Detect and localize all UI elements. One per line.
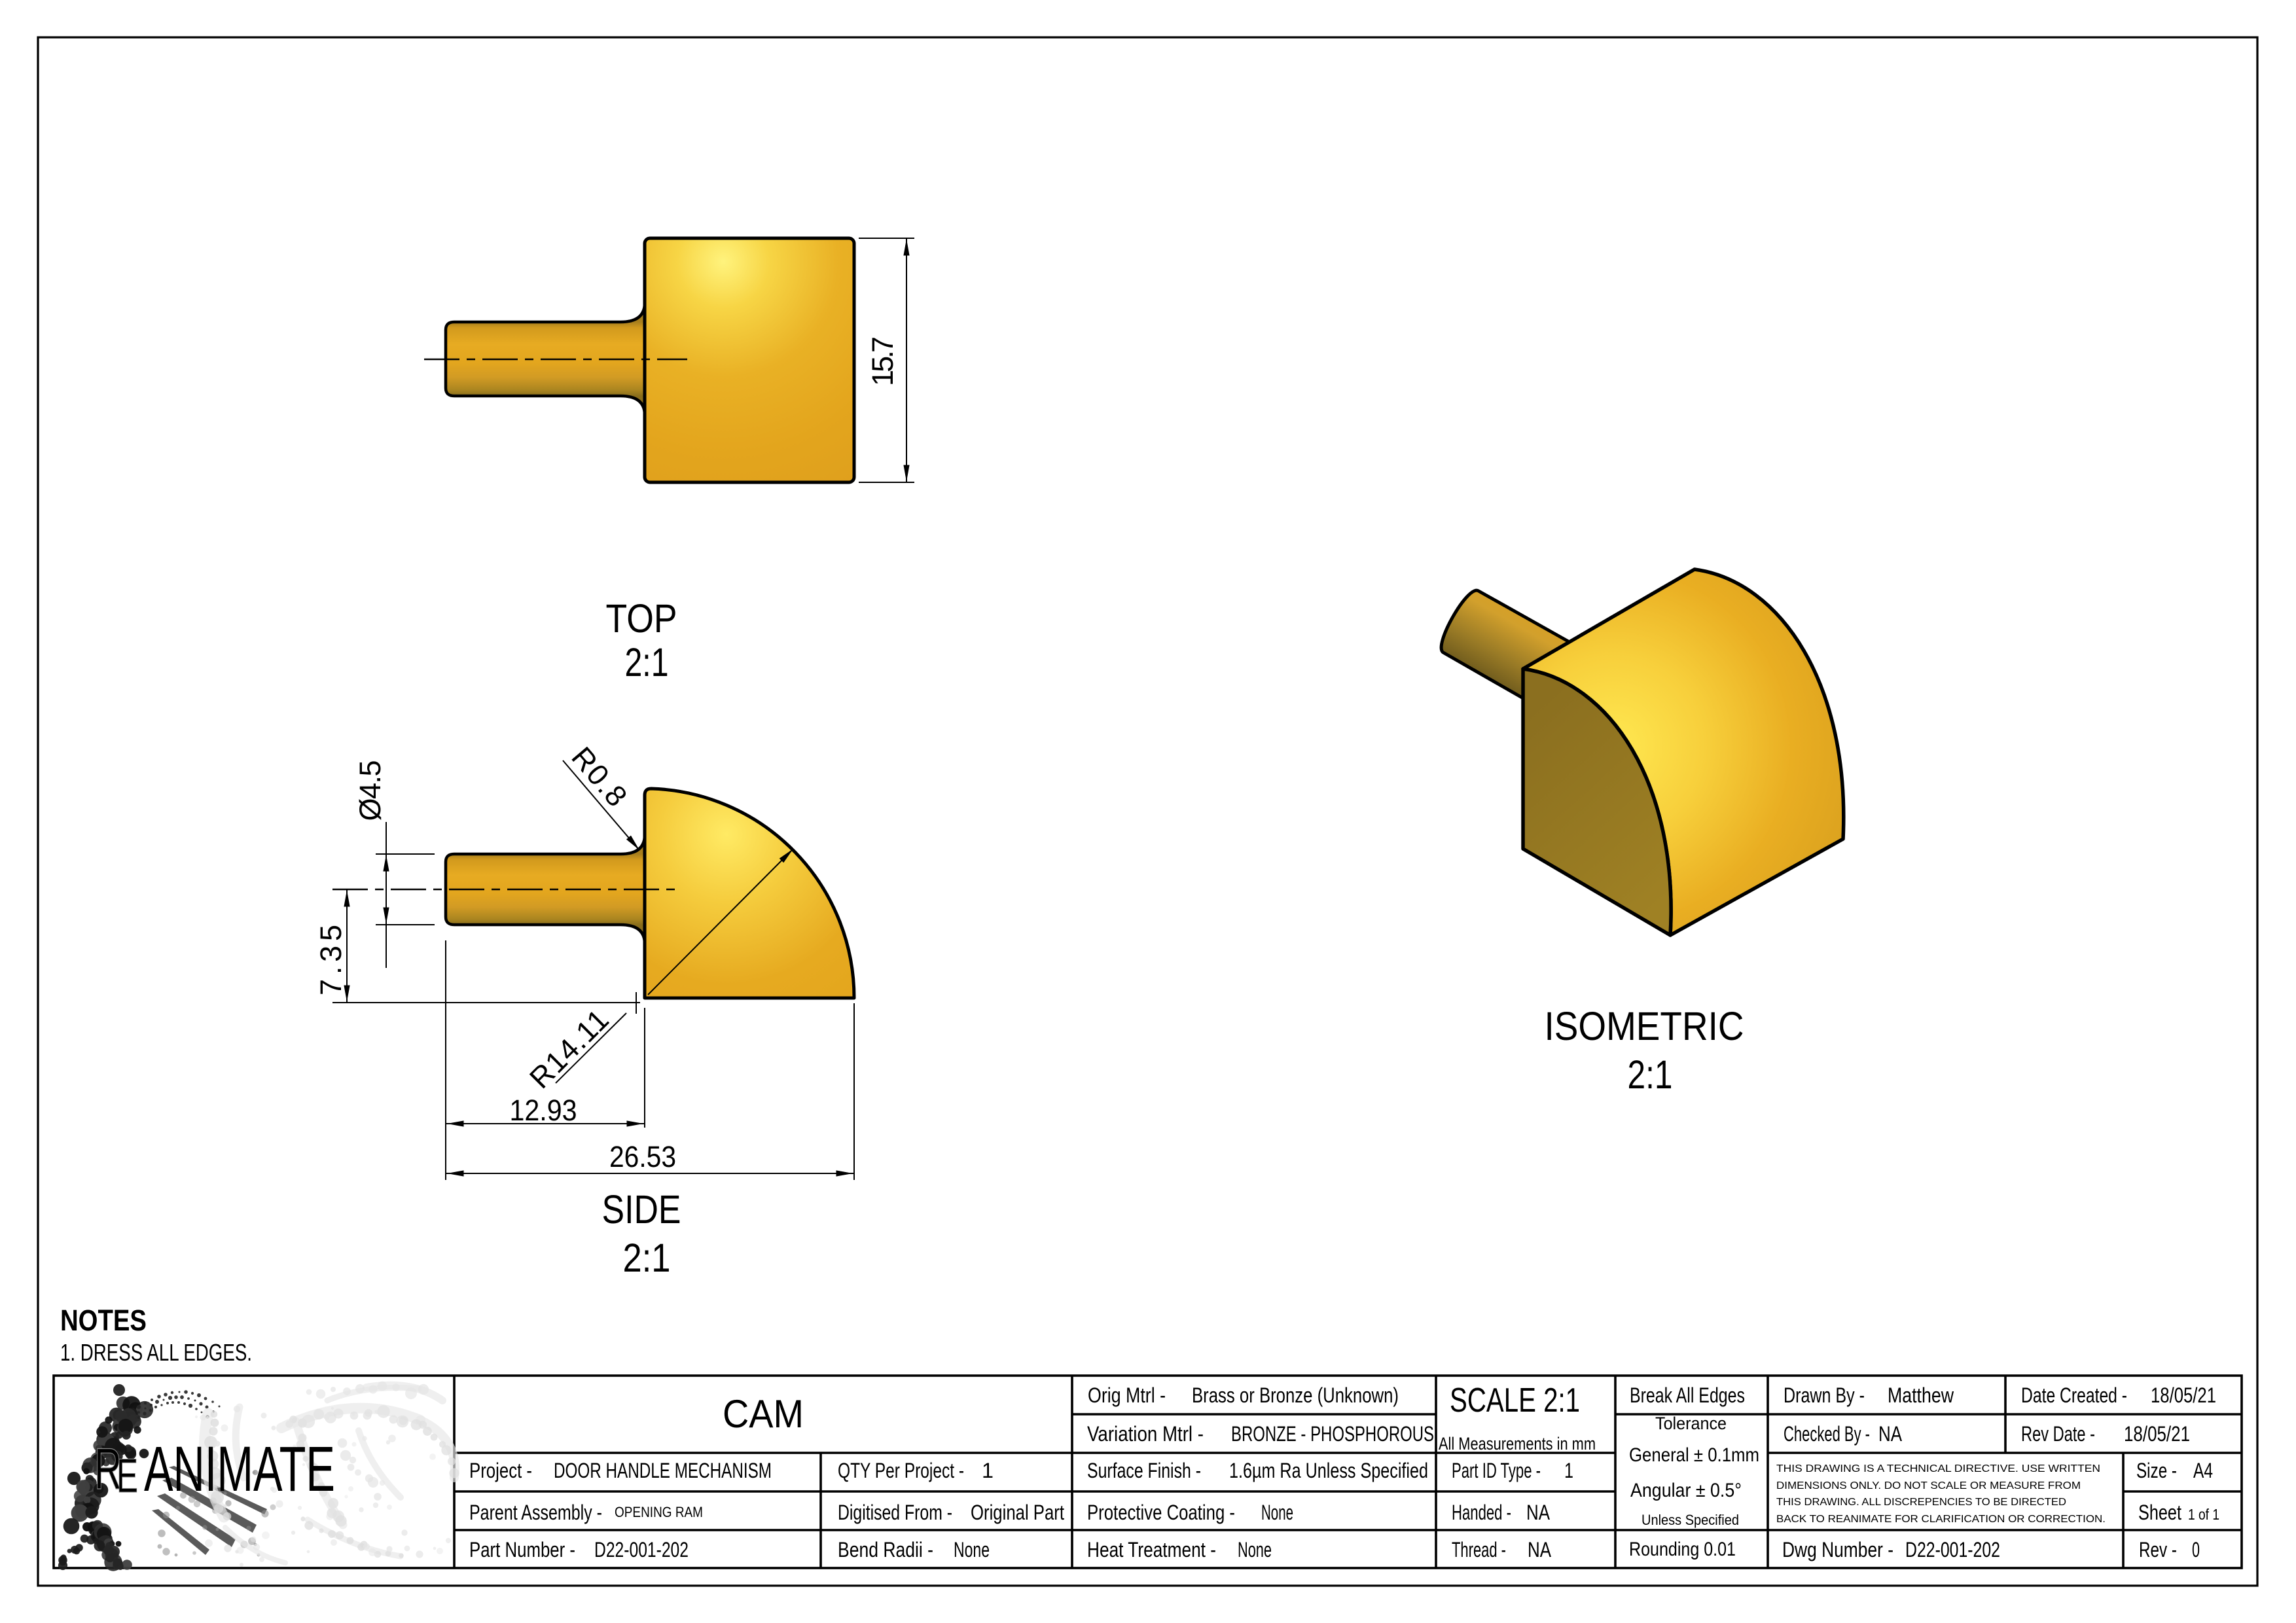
- svg-text:Digitised From -: Digitised From -: [838, 1501, 952, 1524]
- svg-text:15.7: 15.7: [866, 336, 899, 386]
- svg-text:None: None: [1261, 1501, 1293, 1524]
- svg-text:General ± 0.1mm: General ± 0.1mm: [1629, 1444, 1759, 1466]
- svg-text:Heat Treatment -: Heat Treatment -: [1087, 1538, 1216, 1561]
- svg-text:None: None: [954, 1538, 990, 1561]
- svg-text:Project -: Project -: [469, 1459, 532, 1482]
- svg-text:THIS DRAWING. ALL DISCREPENCIE: THIS DRAWING. ALL DISCREPENCIES TO BE DI…: [1776, 1497, 2066, 1508]
- svg-text:2:1: 2:1: [625, 640, 669, 685]
- svg-text:TOP: TOP: [606, 596, 677, 641]
- svg-text:Sheet: Sheet: [2138, 1501, 2181, 1524]
- svg-text:NA: NA: [1878, 1422, 1903, 1446]
- svg-text:QTY Per Project -: QTY Per Project -: [838, 1459, 964, 1482]
- svg-text:Rev Date -: Rev Date -: [2021, 1422, 2095, 1446]
- svg-text:0: 0: [2192, 1538, 2200, 1561]
- svg-text:Rounding 0.01: Rounding 0.01: [1629, 1539, 1736, 1560]
- svg-text:Orig Mtrl -: Orig Mtrl -: [1088, 1383, 1166, 1407]
- svg-text:E: E: [117, 1450, 138, 1503]
- svg-text:Drawn By -: Drawn By -: [1784, 1383, 1865, 1407]
- svg-text:Size -: Size -: [2136, 1459, 2177, 1482]
- svg-text:1: 1: [1564, 1459, 1573, 1482]
- svg-text:BACK TO REANIMATE FOR CLARIFIC: BACK TO REANIMATE FOR CLARIFICATION OR C…: [1776, 1514, 2106, 1525]
- svg-text:1.6µm Ra Unless Specified: 1.6µm Ra Unless Specified: [1229, 1459, 1428, 1482]
- svg-text:D22-001-202: D22-001-202: [1905, 1538, 2000, 1561]
- svg-text:DOOR HANDLE MECHANISM: DOOR HANDLE MECHANISM: [554, 1459, 772, 1482]
- svg-text:SCALE 2:1: SCALE 2:1: [1450, 1382, 1580, 1419]
- svg-text:All Measurements in mm: All Measurements in mm: [1439, 1434, 1596, 1454]
- svg-text:18/05/21: 18/05/21: [2124, 1422, 2190, 1446]
- svg-text:Tolerance: Tolerance: [1655, 1414, 1727, 1433]
- svg-text:Part ID Type -: Part ID Type -: [1452, 1459, 1541, 1482]
- svg-text:Matthew: Matthew: [1888, 1383, 1954, 1407]
- svg-text:NA: NA: [1528, 1538, 1552, 1561]
- svg-text:Unless Specified: Unless Specified: [1641, 1512, 1739, 1528]
- svg-text:7.35: 7.35: [314, 925, 348, 995]
- svg-text:OPENING RAM: OPENING RAM: [615, 1504, 703, 1520]
- svg-text:A4: A4: [2193, 1459, 2213, 1482]
- svg-text:NA: NA: [1526, 1501, 1551, 1524]
- svg-text:Handed -: Handed -: [1452, 1501, 1511, 1524]
- svg-text:Parent Assembly -: Parent Assembly -: [469, 1501, 602, 1524]
- svg-text:Angular ± 0.5°: Angular ± 0.5°: [1630, 1480, 1742, 1501]
- svg-text:NOTES: NOTES: [60, 1304, 147, 1337]
- svg-text:1: 1: [982, 1459, 994, 1482]
- svg-text:1. DRESS ALL EDGES.: 1. DRESS ALL EDGES.: [60, 1339, 252, 1366]
- svg-text:ISOMETRIC: ISOMETRIC: [1545, 1004, 1744, 1048]
- svg-text:Variation Mtrl -: Variation Mtrl -: [1087, 1422, 1204, 1446]
- svg-text:CAM: CAM: [723, 1392, 804, 1436]
- svg-text:26.53: 26.53: [609, 1140, 676, 1173]
- svg-text:Date Created -: Date Created -: [2021, 1383, 2127, 1407]
- svg-text:D22-001-202: D22-001-202: [594, 1538, 689, 1561]
- svg-text:Break All Edges: Break All Edges: [1630, 1383, 1745, 1407]
- svg-text:Ø4.5: Ø4.5: [353, 760, 387, 821]
- svg-text:Bend Radii -: Bend Radii -: [838, 1538, 933, 1561]
- svg-text:BRONZE - PHOSPHOROUS: BRONZE - PHOSPHOROUS: [1231, 1422, 1434, 1446]
- svg-text:1 of 1: 1 of 1: [2188, 1506, 2219, 1523]
- svg-text:None: None: [1238, 1538, 1272, 1561]
- svg-text:18/05/21: 18/05/21: [2151, 1383, 2216, 1407]
- svg-text:Checked By -: Checked By -: [1784, 1422, 1870, 1446]
- svg-text:Dwg Number -: Dwg Number -: [1782, 1538, 1893, 1561]
- svg-text:Original Part: Original Part: [971, 1501, 1064, 1524]
- svg-text:DIMENSIONS ONLY. DO NOT SCALE: DIMENSIONS ONLY. DO NOT SCALE OR MEASURE…: [1776, 1480, 2081, 1491]
- svg-text:THIS DRAWING IS A TECHNICAL DI: THIS DRAWING IS A TECHNICAL DIRECTIVE. U…: [1776, 1463, 2100, 1474]
- svg-text:2:1: 2:1: [1628, 1052, 1673, 1097]
- svg-text:SIDE: SIDE: [602, 1187, 681, 1232]
- svg-text:ANIMATE: ANIMATE: [144, 1433, 335, 1505]
- svg-text:Protective Coating -: Protective Coating -: [1087, 1501, 1235, 1524]
- svg-text:12.93: 12.93: [510, 1094, 577, 1127]
- svg-text:Rev -: Rev -: [2139, 1538, 2177, 1561]
- svg-text:Brass or Bronze (Unknown): Brass or Bronze (Unknown): [1192, 1383, 1399, 1407]
- svg-text:Surface Finish -: Surface Finish -: [1087, 1459, 1201, 1482]
- svg-text:Thread -: Thread -: [1452, 1538, 1506, 1561]
- svg-text:2:1: 2:1: [623, 1236, 671, 1280]
- svg-text:Part Number -: Part Number -: [469, 1538, 575, 1561]
